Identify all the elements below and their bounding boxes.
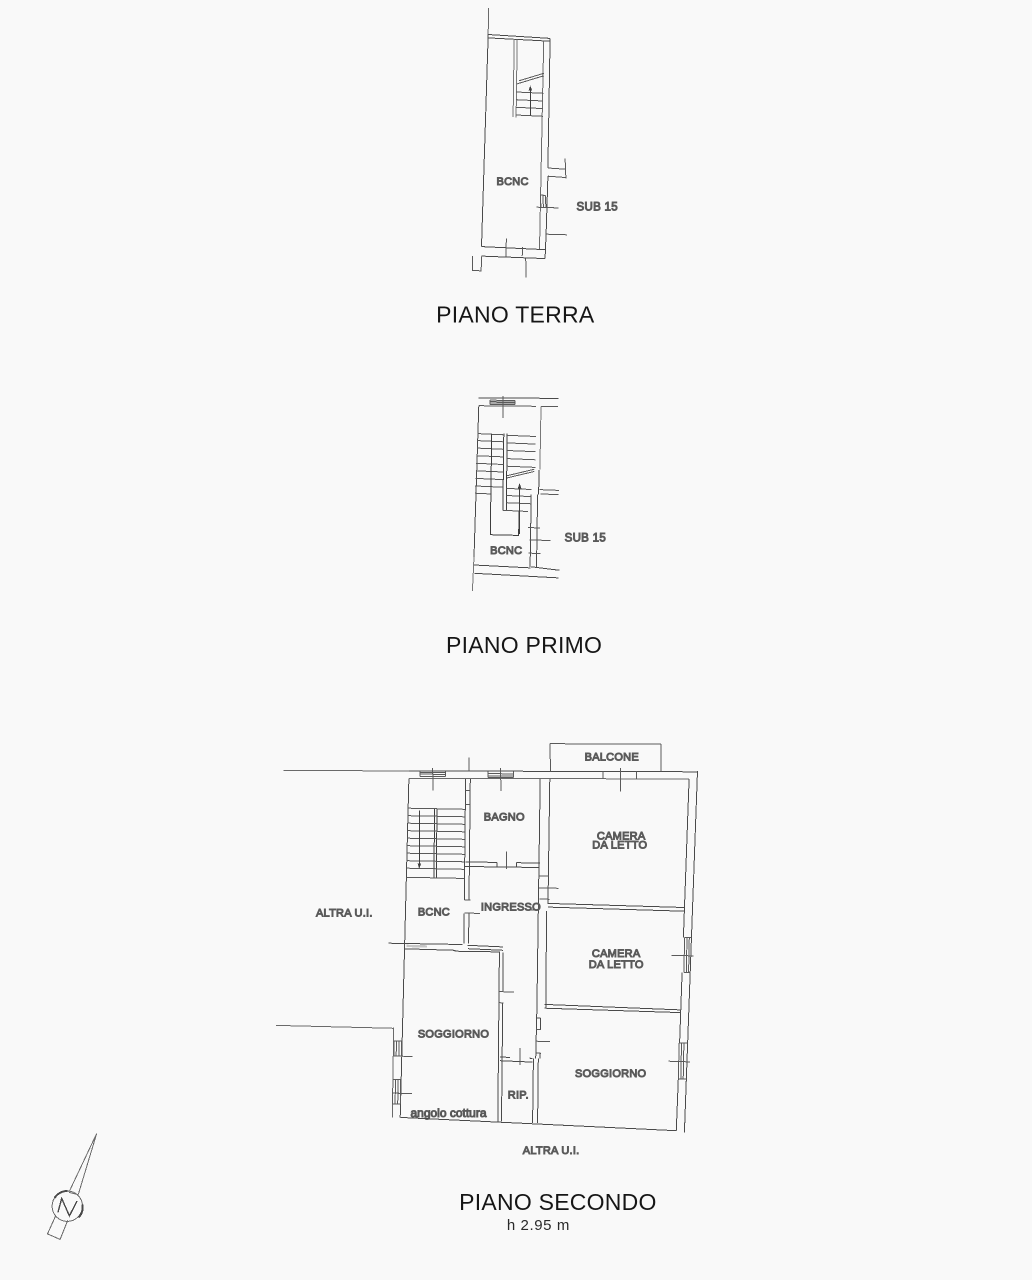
- svg-text:PIANO PRIMO: PIANO PRIMO: [446, 632, 602, 658]
- svg-text:PIANO SECONDO: PIANO SECONDO: [459, 1189, 657, 1215]
- svg-text:DA LETTO: DA LETTO: [589, 959, 644, 971]
- svg-text:h 2.95 m: h 2.95 m: [507, 1217, 570, 1234]
- svg-text:BCNC: BCNC: [418, 907, 450, 919]
- svg-text:BALCONE: BALCONE: [585, 751, 639, 763]
- svg-text:DA LETTO: DA LETTO: [592, 840, 647, 852]
- svg-text:SUB 15: SUB 15: [577, 202, 618, 214]
- svg-text:BCNC: BCNC: [490, 545, 522, 557]
- svg-text:INGRESSO: INGRESSO: [481, 901, 541, 913]
- svg-text:ALTRA U.I.: ALTRA U.I.: [523, 1145, 580, 1157]
- svg-text:BAGNO: BAGNO: [484, 812, 525, 824]
- svg-text:PIANO TERRA: PIANO TERRA: [436, 301, 595, 327]
- svg-text:SOGGIORNO: SOGGIORNO: [575, 1068, 647, 1080]
- svg-text:BCNC: BCNC: [497, 176, 529, 188]
- svg-text:ALTRA U.I.: ALTRA U.I.: [316, 907, 373, 919]
- svg-text:SOGGIORNO: SOGGIORNO: [418, 1029, 490, 1041]
- svg-text:SUB 15: SUB 15: [565, 532, 606, 544]
- svg-text:RIP.: RIP.: [508, 1090, 529, 1102]
